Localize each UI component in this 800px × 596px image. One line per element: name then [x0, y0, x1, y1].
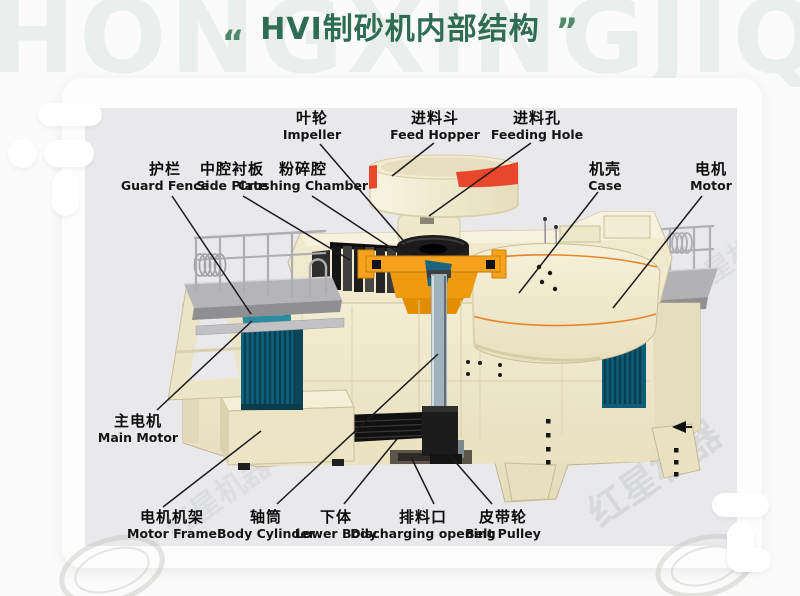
leader-feed-hopper [392, 143, 434, 176]
label-case: 机壳 Case [588, 162, 622, 192]
leader-guard-fence [172, 196, 251, 314]
label-belt-pulley: 皮带轮 Belt Pulley [465, 510, 541, 540]
leader-belt-pulley [445, 450, 492, 504]
decor-dot-1 [8, 139, 37, 168]
close-quote-icon: ” [556, 14, 578, 48]
page-title: HVI制砂机内部结构 [260, 12, 540, 48]
leader-case [519, 192, 598, 293]
leader-lines [0, 0, 800, 596]
leader-feeding-hole [429, 143, 531, 216]
leader-main-motor [157, 321, 252, 410]
label-feeding-hole: 进料孔 Feeding Hole [491, 111, 583, 141]
decor-pipe-2 [44, 140, 94, 167]
leader-discharging-opening [411, 457, 434, 504]
open-quote-icon: “ [222, 26, 244, 60]
leader-motor [613, 196, 702, 308]
decor-pipe-4 [712, 493, 769, 517]
label-motor-frame: 电机机架 Motor Frame [127, 510, 217, 540]
page: { "header": { "watermark": "HONGXINGJIQI… [0, 0, 800, 596]
label-impeller: 叶轮 Impeller [283, 111, 341, 141]
decor-pipe-1 [38, 103, 102, 126]
leader-side-plate [243, 196, 350, 260]
leader-lower-body [344, 439, 397, 504]
leader-body-cylinder [277, 354, 438, 504]
decor-pipe-6 [727, 548, 771, 572]
label-main-motor: 主电机 Main Motor [98, 414, 178, 444]
label-motor: 电机 Motor [690, 162, 732, 192]
label-crushing-chamber: 粉碎腔 Crushing Chamber [238, 162, 368, 192]
decor-pipe-3 [52, 170, 79, 216]
title-bar: “ HVI制砂机内部结构 ” [0, 12, 800, 60]
label-feed-hopper: 进料斗 Feed Hopper [390, 111, 480, 141]
